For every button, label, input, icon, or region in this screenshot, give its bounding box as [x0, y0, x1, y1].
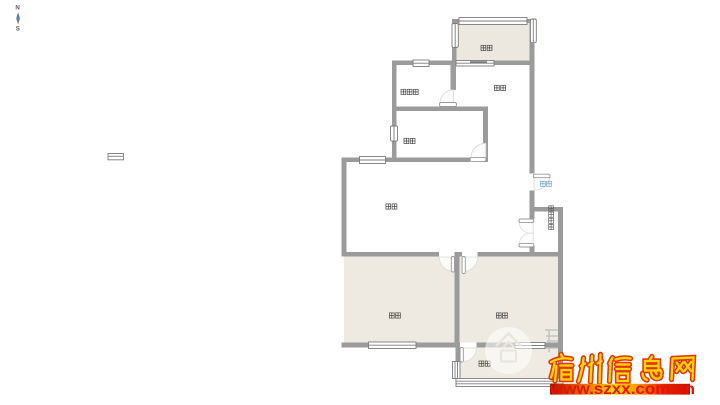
- svg-text:N: N: [15, 4, 20, 11]
- svg-text:www.szxx.com.cn: www.szxx.com.cn: [549, 381, 695, 398]
- svg-text:S: S: [16, 26, 20, 33]
